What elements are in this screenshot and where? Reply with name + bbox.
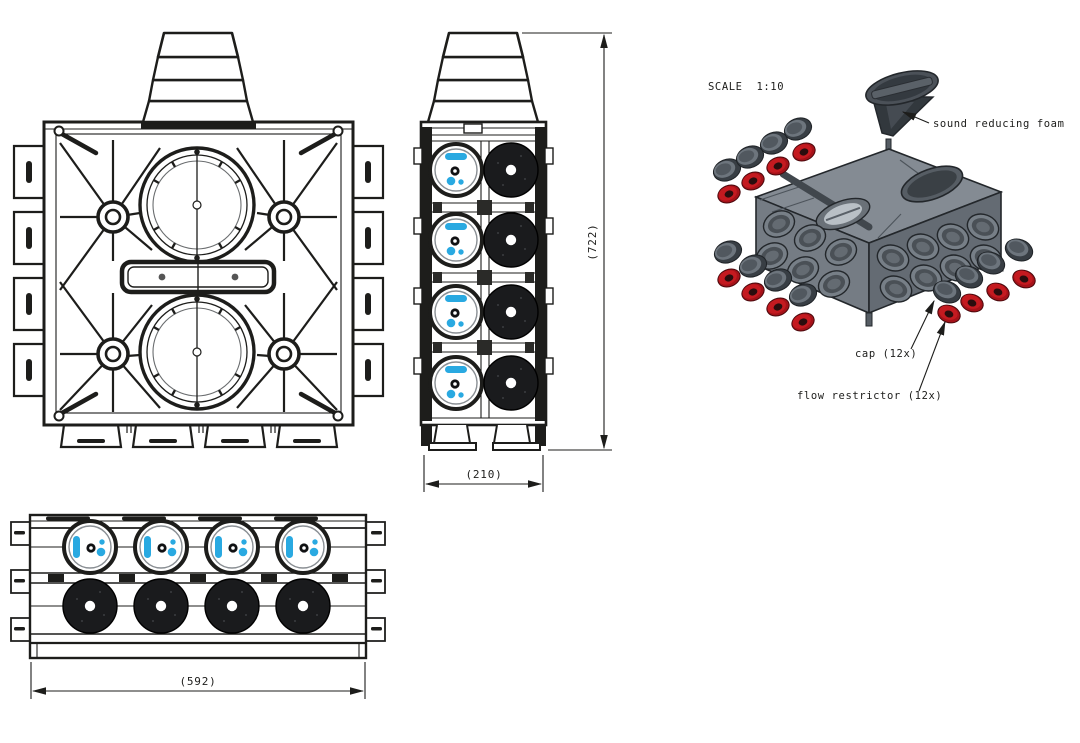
- front-supply-port: [277, 521, 329, 573]
- side-foam-port: [484, 356, 538, 410]
- front-foam-port: [63, 579, 117, 633]
- flow-restrictor-3d: [790, 140, 818, 164]
- cap-3d: [1002, 235, 1035, 264]
- scale-label: SCALE 1:10: [708, 81, 784, 93]
- restrictor-label: flow restrictor (12x): [797, 390, 942, 402]
- plan-screw-boss: [269, 202, 299, 232]
- flow-restrictor-3d: [739, 280, 767, 304]
- plan-bottom-feet: [61, 425, 337, 447]
- technical-drawing-page: (722) (210): [0, 0, 1080, 743]
- flow-restrictor-3d: [984, 280, 1011, 304]
- plan-screw-boss: [98, 202, 128, 232]
- foam-part: [862, 64, 941, 136]
- side-foam-port: [484, 285, 538, 339]
- front-foam-port: [134, 579, 188, 633]
- flow-restrictor-3d: [739, 169, 767, 193]
- dim-depth: (210): [424, 455, 543, 492]
- view-plan: [14, 33, 383, 447]
- front-foam-port: [276, 579, 330, 633]
- front-supply-port: [135, 521, 187, 573]
- plan-left-tabs: [14, 146, 44, 396]
- flow-restrictor-3d: [715, 182, 743, 206]
- flow-restrictor-3d: [715, 266, 743, 290]
- side-supply-port: [430, 214, 482, 266]
- flow-restrictor-3d: [958, 291, 985, 315]
- plan-port-top: [140, 148, 254, 262]
- cap-3d: [711, 237, 745, 267]
- cap-label: cap (12x): [855, 348, 917, 360]
- side-foam-port: [484, 143, 538, 197]
- callout-restrictor: flow restrictor (12x): [797, 322, 945, 402]
- view-side: (722) (210): [414, 33, 612, 492]
- technical-drawing-canvas: (722) (210): [0, 0, 1080, 743]
- foam-label: sound reducing foam: [933, 118, 1065, 130]
- callout-foam: sound reducing foam: [903, 112, 1065, 130]
- front-supply-port: [206, 521, 258, 573]
- side-foam-port: [484, 213, 538, 267]
- flow-restrictor-3d: [1010, 267, 1037, 291]
- plan-cone-adapter: [143, 33, 253, 122]
- side-cone-adapter: [428, 33, 538, 122]
- view-exploded: SCALE 1:10: [708, 64, 1065, 402]
- dim-depth-label: (210): [465, 468, 502, 481]
- plan-right-tabs: [353, 146, 383, 396]
- side-supply-port: [430, 144, 482, 196]
- dim-width-label: (592): [179, 675, 216, 688]
- plan-screw-boss: [98, 339, 128, 369]
- dim-height-label: (722): [586, 223, 599, 260]
- dim-width: (592): [31, 662, 365, 699]
- front-supply-port: [64, 521, 116, 573]
- side-supply-port: [430, 286, 482, 338]
- flow-restrictor-3d: [764, 295, 792, 319]
- flow-restrictor-3d: [789, 310, 817, 334]
- plan-screw-boss: [269, 339, 299, 369]
- front-foam-port: [205, 579, 259, 633]
- side-supply-port: [430, 357, 482, 409]
- plan-handle: [122, 262, 274, 292]
- view-front: (592): [11, 515, 385, 699]
- flow-restrictor-3d: [935, 302, 962, 326]
- plan-port-bottom: [140, 295, 254, 409]
